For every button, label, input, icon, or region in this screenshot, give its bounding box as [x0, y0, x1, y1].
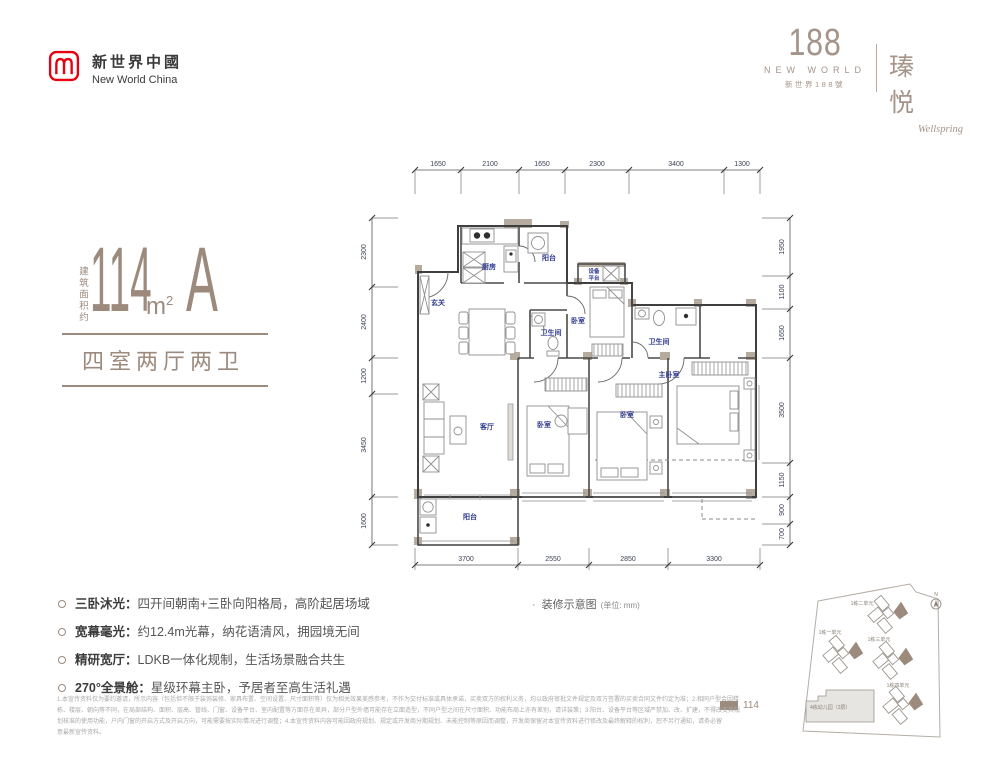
- dim-right-2: 1100: [779, 284, 786, 299]
- header-divider: [876, 44, 877, 92]
- bullet-circle-icon: [58, 656, 66, 664]
- dim-top-3: 1650: [534, 161, 550, 168]
- building-cluster-2: [863, 588, 910, 634]
- bullet-circle-icon: [58, 628, 66, 636]
- floor-plan: 玄关 厨房 阳台 设备 平台 卫生间 卧室 卫生间 主卧室 客厅 卧室 卧室 阳…: [340, 140, 810, 590]
- feature-item: 270°全景舱：星级环幕主卧，予居者至高生活礼遇: [58, 681, 408, 696]
- disclaimer-line: 划核准的使用功能，户内门窗的开启方式及开启方向，可能需要按实际情况进行调整；4.…: [57, 717, 773, 728]
- project-title-cn: 瑧 悦: [889, 47, 965, 119]
- dim-right-1: 1950: [779, 239, 786, 255]
- project-name-en: NEW WORLD: [760, 65, 870, 75]
- feature-text: 星级环幕主卧，予居者至高生活礼遇: [151, 681, 351, 695]
- kindergarten-label: 4栋幼儿园（3层）: [810, 704, 851, 711]
- feature-text: LDKB一体化规制，生活场景融合共生: [138, 653, 346, 667]
- room-label-bath-1: 卫生间: [541, 328, 562, 337]
- dim-left-5: 1600: [361, 513, 368, 529]
- compass-n-label: N: [934, 592, 938, 598]
- new-world-logo-icon: [48, 50, 80, 82]
- dim-right-3: 1650: [779, 325, 786, 341]
- dim-right-7: 700: [779, 528, 786, 540]
- brochure-page: 新世界中國 New World China 188 NEW WORLD 新世界1…: [0, 0, 1004, 765]
- dim-right-5: 1150: [779, 472, 786, 487]
- area-unit: m2: [146, 293, 173, 321]
- room-label-equipment-2: 平台: [588, 274, 600, 282]
- room-label-equipment-1: 设备: [588, 267, 600, 275]
- unit-layout-label: 四室两厅两卫: [62, 333, 268, 387]
- dim-top-4: 2300: [589, 161, 605, 168]
- project-title-en: Wellspring: [889, 124, 965, 135]
- room-label-bedroom-2: 卧室: [620, 410, 634, 419]
- project-title-block: 瑧 悦 Wellspring: [889, 47, 965, 135]
- bullet-circle-icon: [58, 600, 66, 608]
- building-label-2: 1栋二单元: [851, 600, 874, 607]
- caption-text: 装修示意图: [542, 599, 597, 611]
- feature-title: 宽幕毫光：: [75, 625, 138, 639]
- dim-bottom-3: 2850: [620, 556, 636, 563]
- disclaimer-line: 意最新宣传资料。: [57, 728, 773, 739]
- dim-left-2: 2400: [361, 314, 368, 330]
- dim-top-2: 2100: [482, 161, 498, 168]
- feature-text: 四开间朝南+三卧向阳格局，高阶起居场域: [138, 597, 370, 611]
- room-label-bedroom-1: 卧室: [537, 420, 551, 429]
- dim-left-1: 2300: [361, 244, 368, 260]
- dim-right-6: 900: [779, 504, 786, 516]
- project-name-cn: 新世界188號: [760, 79, 870, 90]
- room-label-entry: 玄关: [431, 298, 445, 307]
- dim-right-4: 3500: [779, 402, 786, 418]
- disclaimer-line: 1.本宣传资料仅为要约邀请，所示内容（包括但不限于装饰装修、家具布置、空间设置、…: [57, 695, 773, 706]
- building-label-4: 1栋四单元: [887, 682, 910, 689]
- feature-title: 精研宽厅：: [75, 653, 138, 667]
- plan-caption: ·装修示意图(单位: mm): [532, 596, 640, 612]
- project-logo-188: 188 NEW WORLD 新世界188號: [760, 24, 870, 90]
- feature-text: 约12.4m光幕，纳花语清风，拥园境无间: [138, 625, 360, 639]
- compass-icon: N: [931, 592, 941, 609]
- area-prefix-label: 建筑面积约: [75, 266, 89, 324]
- dim-top-6: 1300: [734, 161, 750, 168]
- feature-title: 三卧沐光：: [75, 597, 138, 611]
- brand-text: 新世界中國 New World China: [92, 51, 182, 86]
- feature-item: 精研宽厅：LDKB一体化规制，生活场景融合共生: [58, 653, 408, 668]
- feature-title: 270°全景舱：: [75, 681, 151, 695]
- site-plan: 4栋幼儿园（3层） 1栋二单元 1栋一单元 1栋三单元 1栋四单元 N: [795, 575, 1004, 765]
- bullet-circle-icon: [58, 684, 66, 692]
- feature-item: 宽幕毫光：约12.4m光幕，纳花语清风，拥园境无间: [58, 625, 408, 640]
- room-label-bedroom-top: 卧室: [571, 316, 585, 325]
- building-label-3: 1栋三单元: [868, 636, 891, 643]
- dim-bottom-1: 3700: [458, 556, 474, 563]
- caption-bullet-icon: ·: [532, 599, 536, 611]
- room-label-bath-2: 卫生间: [649, 337, 670, 346]
- feature-item: 三卧沐光：四开间朝南+三卧向阳格局，高阶起居场域: [58, 597, 408, 612]
- dim-left-4: 3450: [361, 437, 368, 453]
- room-label-balcony-top: 阳台: [542, 253, 556, 262]
- dim-top-1: 1650: [430, 161, 446, 168]
- caption-unit: (单位: mm): [601, 601, 640, 610]
- project-number: 188: [771, 24, 859, 62]
- dim-top-5: 3400: [668, 161, 684, 168]
- room-label-kitchen: 厨房: [482, 262, 496, 271]
- room-label-master: 主卧室: [659, 370, 680, 379]
- brand-name-en: New World China: [92, 74, 182, 86]
- dim-bottom-4: 3300: [706, 556, 722, 563]
- building-label-1: 1栋一单元: [819, 629, 842, 636]
- disclaimer-line: 栋、楼层、朝向等不同，在局部结构、面积、层高、管线、门窗、设备平台、室内配置等方…: [57, 706, 773, 717]
- brand-name-cn: 新世界中國: [92, 51, 182, 72]
- dim-bottom-2: 2550: [545, 556, 561, 563]
- room-label-balcony-bottom: 阳台: [463, 512, 477, 521]
- disclaimer: 1.本宣传资料仅为要约邀请，所示内容（包括但不限于装饰装修、家具布置、空间设置、…: [57, 695, 773, 739]
- dim-left-3: 1200: [361, 368, 368, 384]
- area-value: 114: [90, 239, 152, 322]
- feature-list: 三卧沐光：四开间朝南+三卧向阳格局，高阶起居场域 宽幕毫光：约12.4m光幕，纳…: [58, 597, 408, 709]
- room-label-living: 客厅: [479, 422, 494, 431]
- unit-type-letter: A: [186, 239, 218, 322]
